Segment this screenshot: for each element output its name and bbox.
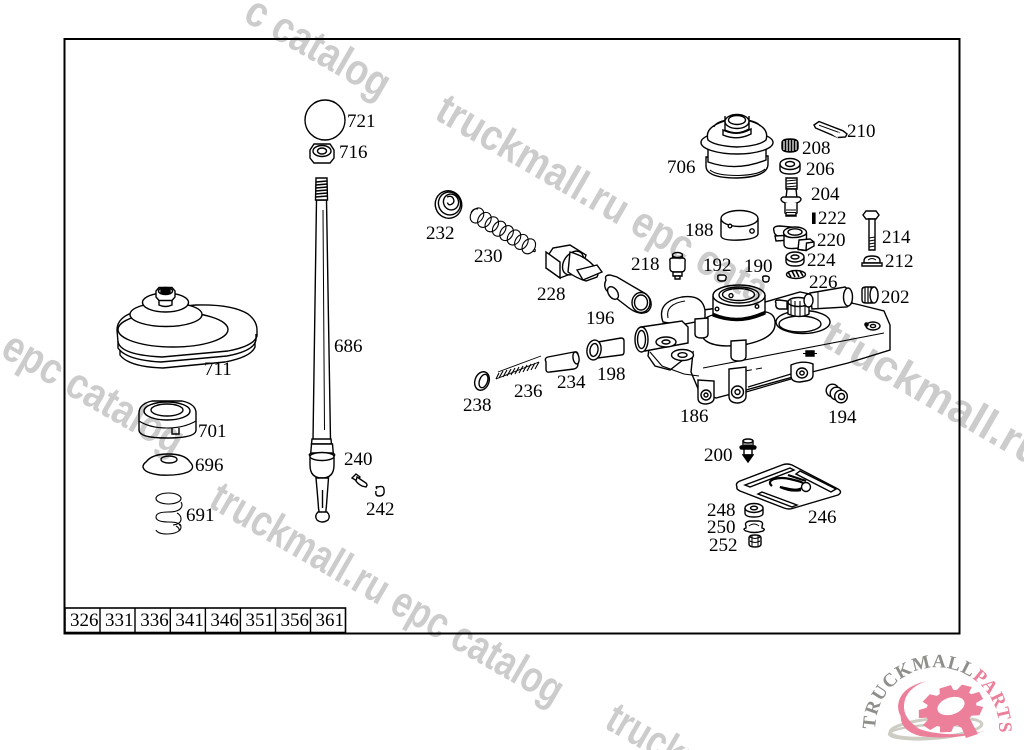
svg-text:238: 238 bbox=[463, 395, 492, 416]
svg-text:346: 346 bbox=[210, 610, 239, 631]
svg-text:198: 198 bbox=[597, 364, 626, 385]
svg-text:696: 696 bbox=[195, 455, 224, 476]
svg-text:706: 706 bbox=[667, 157, 696, 178]
svg-text:240: 240 bbox=[344, 449, 373, 470]
svg-text:242: 242 bbox=[366, 499, 395, 520]
svg-text:326: 326 bbox=[70, 610, 99, 631]
svg-text:230: 230 bbox=[474, 246, 503, 267]
svg-text:351: 351 bbox=[246, 610, 275, 631]
svg-text:336: 336 bbox=[140, 610, 169, 631]
svg-text:686: 686 bbox=[334, 336, 363, 357]
svg-text:206: 206 bbox=[806, 159, 835, 180]
svg-text:711: 711 bbox=[204, 359, 232, 380]
svg-text:341: 341 bbox=[175, 610, 204, 631]
svg-text:234: 234 bbox=[557, 372, 586, 393]
svg-text:194: 194 bbox=[828, 407, 857, 428]
svg-text:202: 202 bbox=[881, 287, 910, 308]
svg-text:196: 196 bbox=[586, 308, 615, 329]
svg-text:236: 236 bbox=[514, 381, 543, 402]
svg-text:220: 220 bbox=[817, 230, 846, 251]
svg-text:222: 222 bbox=[818, 208, 847, 229]
svg-text:361: 361 bbox=[316, 610, 345, 631]
svg-text:721: 721 bbox=[347, 111, 376, 132]
svg-text:716: 716 bbox=[339, 142, 368, 163]
svg-text:331: 331 bbox=[105, 610, 134, 631]
svg-text:224: 224 bbox=[807, 250, 836, 271]
svg-text:200: 200 bbox=[704, 445, 733, 466]
svg-text:356: 356 bbox=[281, 610, 310, 631]
svg-text:210: 210 bbox=[847, 121, 876, 142]
svg-text:232: 232 bbox=[426, 223, 455, 244]
svg-text:246: 246 bbox=[808, 507, 837, 528]
svg-text:208: 208 bbox=[802, 138, 831, 159]
svg-text:214: 214 bbox=[882, 227, 911, 248]
svg-text:212: 212 bbox=[885, 251, 914, 272]
svg-text:186: 186 bbox=[680, 406, 709, 427]
svg-text:204: 204 bbox=[811, 184, 840, 205]
svg-text:228: 228 bbox=[537, 284, 566, 305]
svg-text:701: 701 bbox=[198, 421, 227, 442]
svg-text:252: 252 bbox=[709, 535, 738, 556]
